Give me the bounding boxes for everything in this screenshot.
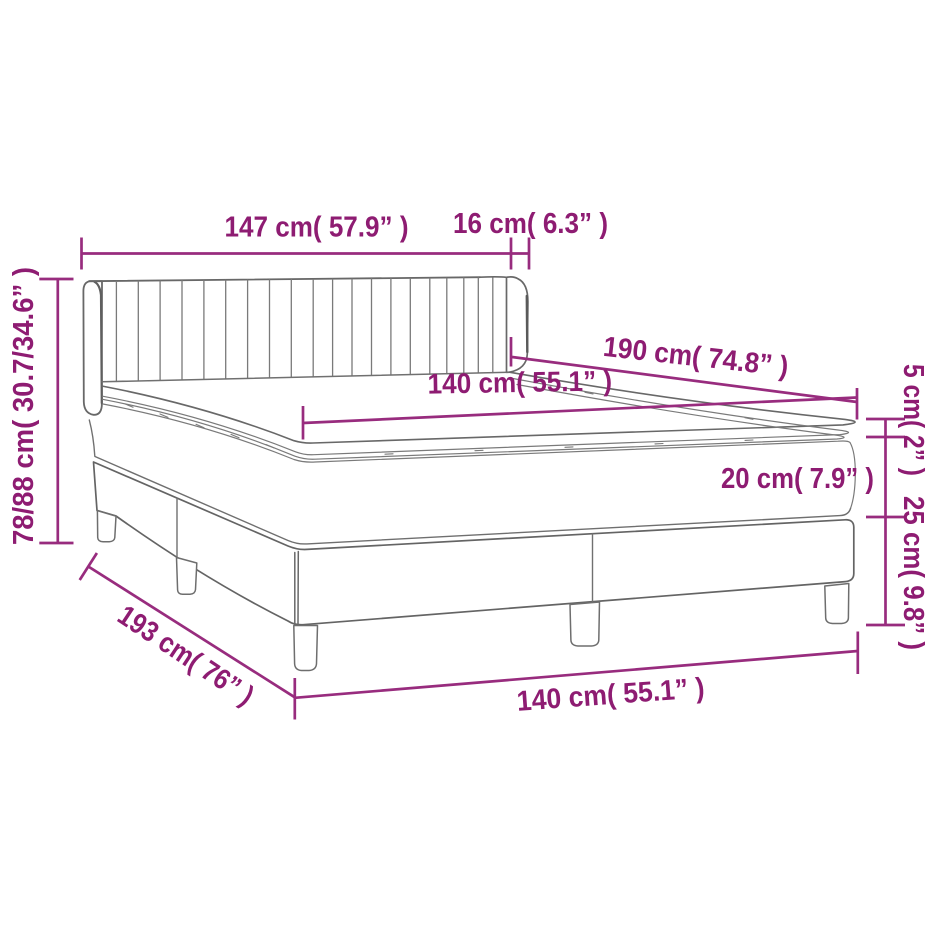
svg-text:16 cm( 6.3” ): 16 cm( 6.3” ) [453,208,608,240]
svg-text:25 cm( 9.8” ): 25 cm( 9.8” ) [897,496,929,650]
svg-text:5 cm( 2” ): 5 cm( 2” ) [897,364,929,476]
svg-text:20 cm( 7.9” ): 20 cm( 7.9” ) [721,463,874,495]
svg-text:147 cm( 57.9” ): 147 cm( 57.9” ) [225,212,409,244]
svg-text:78/88 cm( 30.7/34.6” ): 78/88 cm( 30.7/34.6” ) [8,267,40,545]
svg-text:140 cm( 55.1” ): 140 cm( 55.1” ) [427,365,612,400]
